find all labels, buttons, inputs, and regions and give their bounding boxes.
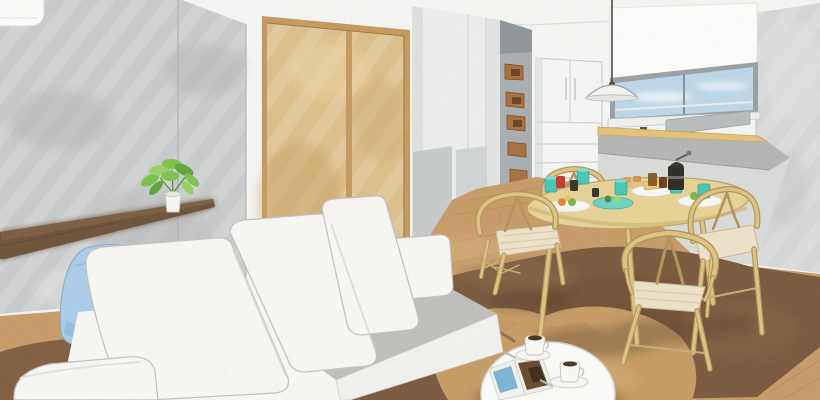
- watercolor-interior-rendering: [0, 0, 820, 400]
- scene-canvas: [0, 0, 820, 400]
- paper-texture: [0, 0, 820, 400]
